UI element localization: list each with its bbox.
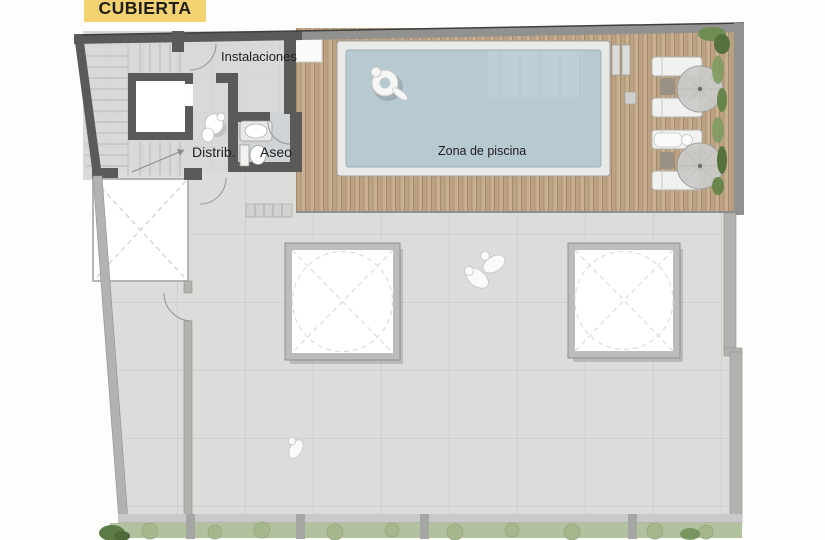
toilet-icon [240, 145, 266, 166]
plan-title-badge: CUBIERTA [84, 0, 206, 22]
side-table [660, 152, 674, 169]
floor-plan-drawing [0, 0, 825, 540]
sink-icon [240, 121, 272, 141]
floor-plan-canvas: CUBIERTA Instalaciones Distrib. Aseo Zon… [0, 0, 825, 540]
elevator [128, 73, 193, 140]
planter-strip [99, 514, 742, 540]
deck-equipment-box [295, 37, 322, 62]
skylight-right [568, 243, 683, 362]
deck-steps [246, 204, 292, 217]
person-on-lounger-icon [654, 133, 693, 147]
side-table [660, 78, 674, 95]
plan-title: CUBIERTA [98, 0, 191, 18]
pool-steps-area [488, 51, 583, 97]
skylight-left [285, 243, 403, 364]
pool [337, 41, 636, 176]
